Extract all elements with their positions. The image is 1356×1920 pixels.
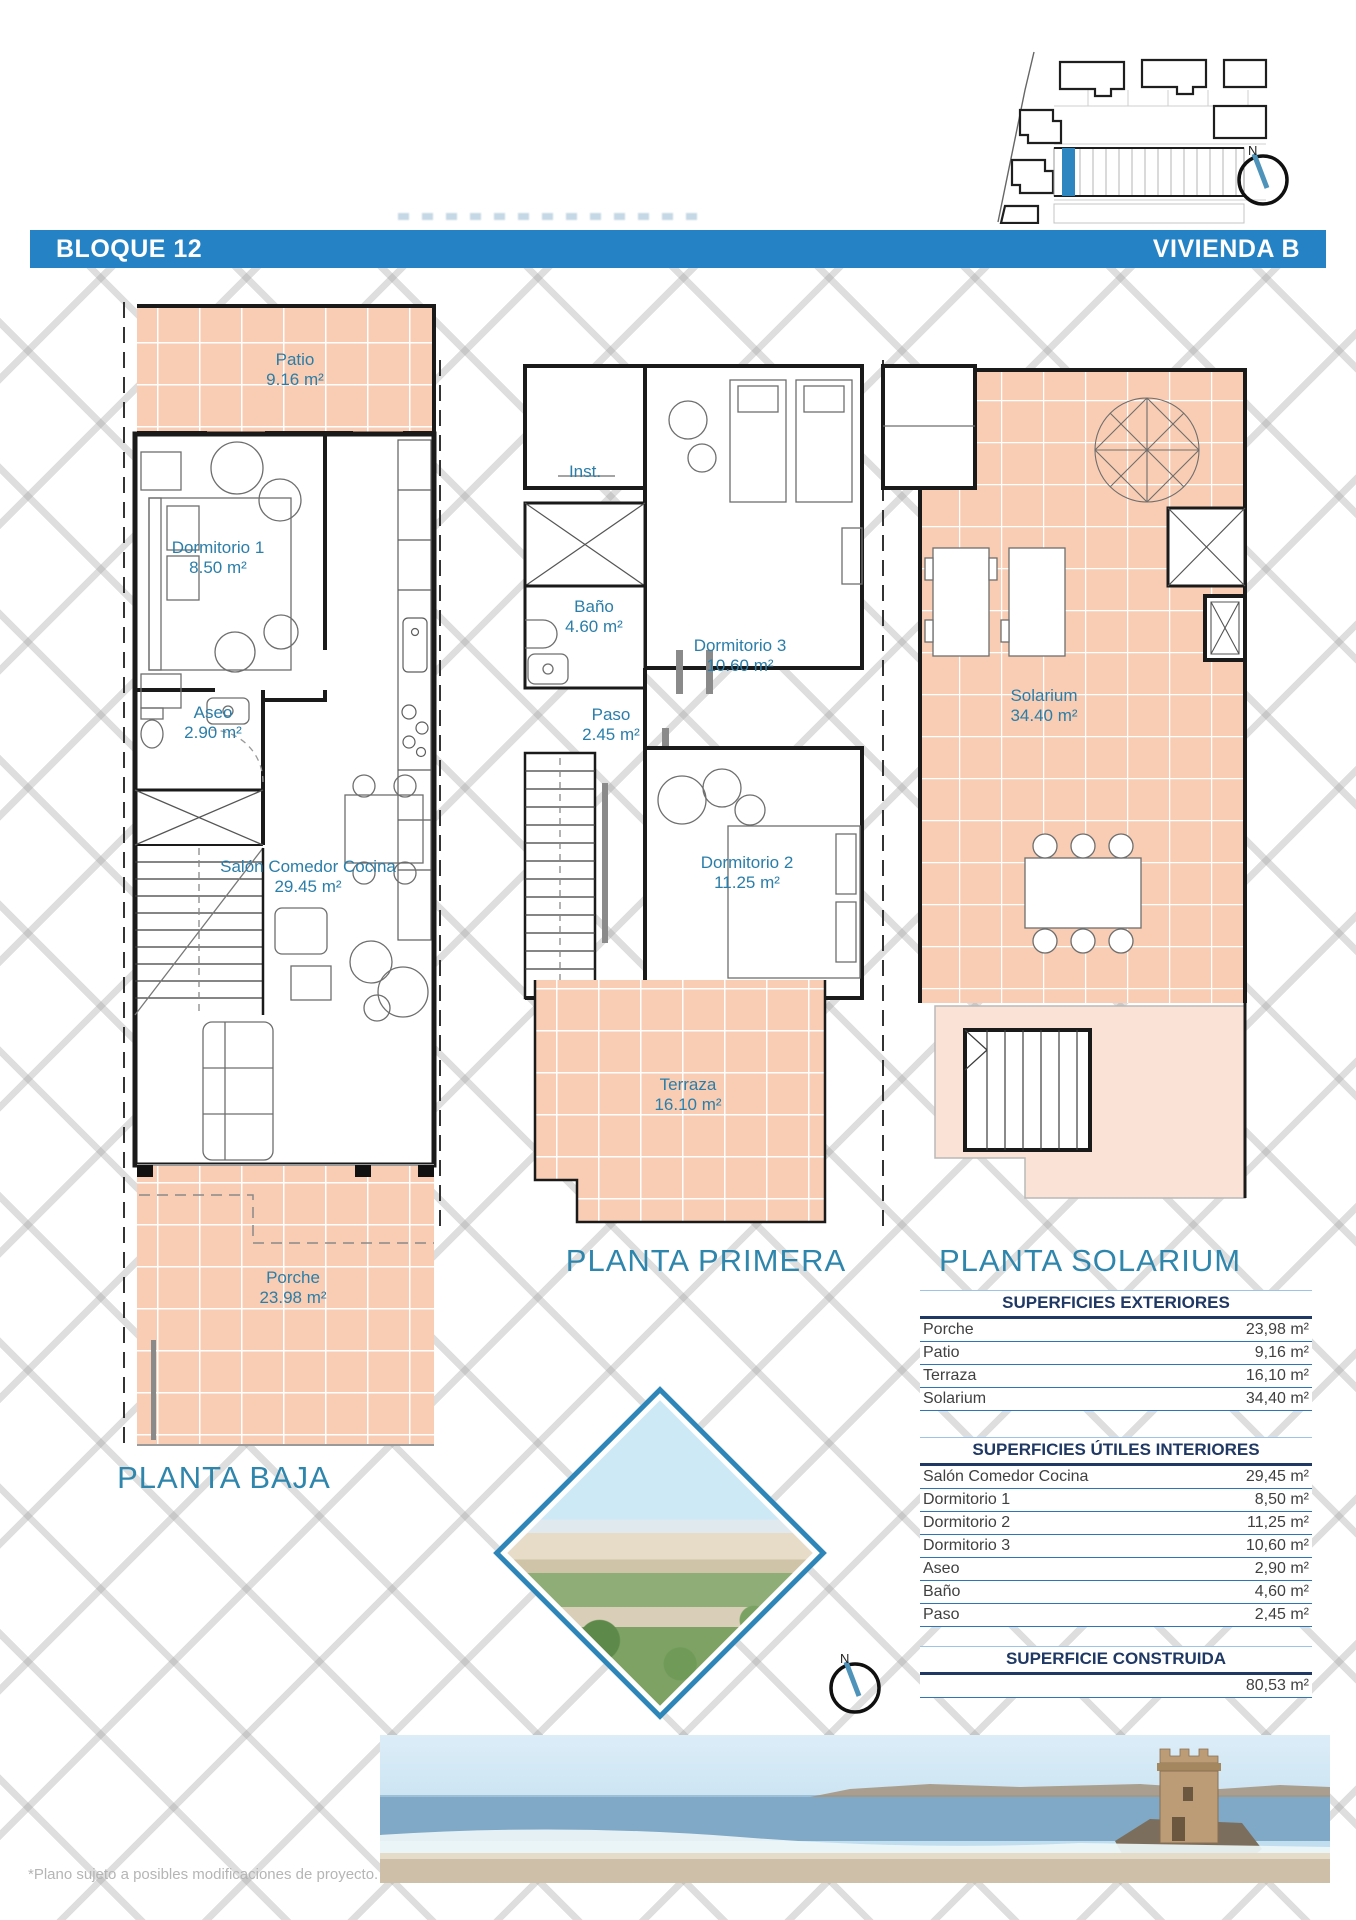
footer-disclaimer: *Plano sujeto a posibles modificaciones … bbox=[28, 1866, 378, 1883]
row-label: Dormitorio 2 bbox=[923, 1514, 1010, 1532]
row-label: Dormitorio 1 bbox=[923, 1491, 1010, 1509]
room-label-paso: Paso 2.45 m² bbox=[582, 705, 640, 745]
table-row: Terraza 16,10 m² bbox=[920, 1365, 1312, 1388]
table-row: Aseo 2,90 m² bbox=[920, 1558, 1312, 1581]
block-label: BLOQUE 12 bbox=[56, 235, 202, 264]
floor-plan-first-drawing bbox=[430, 358, 870, 1233]
room-name: Dormitorio 2 bbox=[701, 853, 794, 873]
table-row: Dormitorio 1 8,50 m² bbox=[920, 1489, 1312, 1512]
row-label: Solarium bbox=[923, 1390, 986, 1408]
room-area: 11.25 m² bbox=[701, 873, 794, 893]
row-value: 10,60 m² bbox=[1246, 1537, 1309, 1555]
table-row: Paso 2,45 m² bbox=[920, 1604, 1312, 1627]
site-plan-highlighted-unit bbox=[1062, 148, 1075, 196]
compass-icon: N bbox=[824, 1650, 886, 1716]
room-label-terraza: Terraza 16.10 m² bbox=[654, 1075, 721, 1115]
first-floor-title: PLANTA PRIMERA bbox=[566, 1243, 846, 1279]
room-name: Baño bbox=[565, 597, 623, 617]
built-surface-table: SUPERFICIE CONSTRUIDA 80,53 m² bbox=[920, 1646, 1312, 1698]
table-row: Salón Comedor Cocina 29,45 m² bbox=[920, 1466, 1312, 1489]
room-label-dormitorio3: Dormitorio 3 10.60 m² bbox=[694, 636, 787, 676]
beach-photo bbox=[380, 1735, 1330, 1883]
floor-plan-solarium-drawing bbox=[875, 358, 1255, 1233]
room-label-solarium: Solarium 34.40 m² bbox=[1010, 686, 1077, 726]
room-name: Patio bbox=[266, 350, 324, 370]
room-name: Dormitorio 3 bbox=[694, 636, 787, 656]
site-plan-map bbox=[968, 48, 1268, 224]
table-row: 80,53 m² bbox=[920, 1675, 1312, 1698]
room-name: Aseo bbox=[184, 703, 242, 723]
room-area: 10.60 m² bbox=[694, 656, 787, 676]
row-value: 34,40 m² bbox=[1246, 1390, 1309, 1408]
room-name: Inst. bbox=[569, 462, 601, 482]
solarium-floor-title: PLANTA SOLARIUM bbox=[939, 1243, 1241, 1279]
row-label: Paso bbox=[923, 1606, 959, 1624]
row-value: 11,25 m² bbox=[1247, 1514, 1309, 1532]
row-label: Dormitorio 3 bbox=[923, 1537, 1010, 1555]
room-label-bano: Baño 4.60 m² bbox=[565, 597, 623, 637]
interior-surfaces-table: SUPERFICIES ÚTILES INTERIORES Salón Come… bbox=[920, 1437, 1312, 1627]
table-title: SUPERFICIES ÚTILES INTERIORES bbox=[920, 1437, 1312, 1466]
exterior-surfaces-table: SUPERFICIES EXTERIORES Porche 23,98 m² P… bbox=[920, 1290, 1312, 1411]
table-row: Dormitorio 3 10,60 m² bbox=[920, 1535, 1312, 1558]
row-value: 16,10 m² bbox=[1246, 1367, 1309, 1385]
row-value: 4,60 m² bbox=[1255, 1583, 1309, 1601]
unit-label: VIVIENDA B bbox=[1153, 235, 1300, 264]
room-name: Terraza bbox=[654, 1075, 721, 1095]
room-label-dormitorio2: Dormitorio 2 11.25 m² bbox=[701, 853, 794, 893]
room-area: 8.50 m² bbox=[172, 558, 265, 578]
row-label: Terraza bbox=[923, 1367, 976, 1385]
compass-north-label: N bbox=[1248, 143, 1257, 158]
brochure-page: N BLOQUE 12 VIVIENDA B bbox=[0, 0, 1356, 1920]
faded-watermark-text bbox=[398, 213, 710, 220]
room-name: Salón Comedor Cocina bbox=[220, 857, 396, 877]
row-label: Salón Comedor Cocina bbox=[923, 1468, 1088, 1486]
room-name: Solarium bbox=[1010, 686, 1077, 706]
room-area: 23.98 m² bbox=[259, 1288, 326, 1308]
row-value: 80,53 m² bbox=[1246, 1677, 1309, 1695]
render-thumbnail-image bbox=[507, 1400, 812, 1705]
row-value: 9,16 m² bbox=[1255, 1344, 1309, 1362]
row-label: Porche bbox=[923, 1321, 974, 1339]
room-name: Dormitorio 1 bbox=[172, 538, 265, 558]
header-bar: BLOQUE 12 VIVIENDA B bbox=[30, 230, 1326, 268]
room-label-porche: Porche 23.98 m² bbox=[259, 1268, 326, 1308]
room-area: 34.40 m² bbox=[1010, 706, 1077, 726]
row-value: 29,45 m² bbox=[1246, 1468, 1309, 1486]
table-title: SUPERFICIE CONSTRUIDA bbox=[920, 1646, 1312, 1675]
room-label-inst: Inst. bbox=[569, 462, 601, 482]
table-row: Baño 4,60 m² bbox=[920, 1581, 1312, 1604]
room-label-patio: Patio 9.16 m² bbox=[266, 350, 324, 390]
compass-icon: N bbox=[1232, 142, 1294, 208]
row-value: 23,98 m² bbox=[1246, 1321, 1309, 1339]
ground-floor-title: PLANTA BAJA bbox=[117, 1460, 331, 1496]
room-area: 16.10 m² bbox=[654, 1095, 721, 1115]
table-row: Patio 9,16 m² bbox=[920, 1342, 1312, 1365]
row-label: Patio bbox=[923, 1344, 959, 1362]
room-label-salon: Salón Comedor Cocina 29.45 m² bbox=[220, 857, 396, 897]
table-row: Dormitorio 2 11,25 m² bbox=[920, 1512, 1312, 1535]
row-value: 2,90 m² bbox=[1255, 1560, 1309, 1578]
row-value: 2,45 m² bbox=[1255, 1606, 1309, 1624]
row-value: 8,50 m² bbox=[1255, 1491, 1309, 1509]
room-area: 2.45 m² bbox=[582, 725, 640, 745]
row-label: Aseo bbox=[923, 1560, 959, 1578]
compass-north-label: N bbox=[840, 1651, 849, 1666]
table-title: SUPERFICIES EXTERIORES bbox=[920, 1290, 1312, 1319]
table-row: Solarium 34,40 m² bbox=[920, 1388, 1312, 1411]
row-label: Baño bbox=[923, 1583, 960, 1601]
render-thumbnail bbox=[493, 1386, 827, 1720]
room-area: 29.45 m² bbox=[220, 877, 396, 897]
room-label-dormitorio1: Dormitorio 1 8.50 m² bbox=[172, 538, 265, 578]
room-area: 9.16 m² bbox=[266, 370, 324, 390]
room-area: 4.60 m² bbox=[565, 617, 623, 637]
room-area: 2.90 m² bbox=[184, 723, 242, 743]
table-row: Porche 23,98 m² bbox=[920, 1319, 1312, 1342]
room-label-aseo: Aseo 2.90 m² bbox=[184, 703, 242, 743]
room-name: Porche bbox=[259, 1268, 326, 1288]
room-name: Paso bbox=[582, 705, 640, 725]
